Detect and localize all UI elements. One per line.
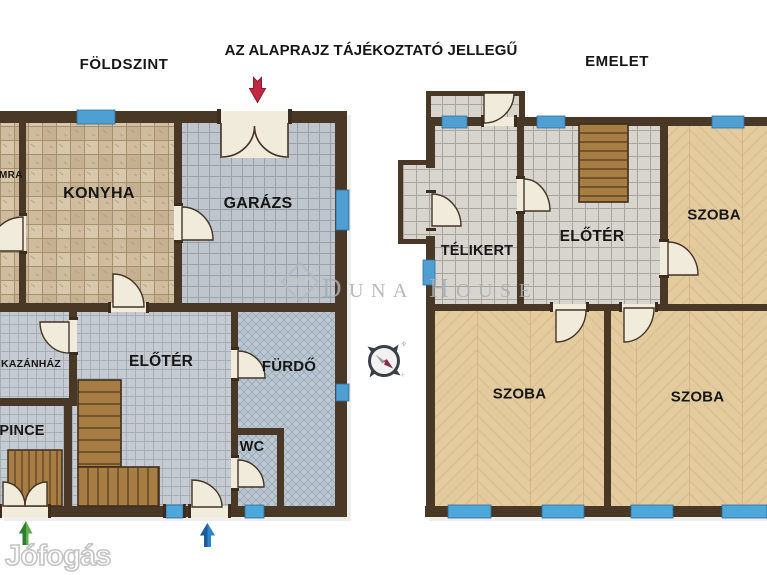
svg-text:ELŐTÉR: ELŐTÉR <box>129 352 193 370</box>
svg-text:KAMRA: KAMRA <box>0 170 23 181</box>
svg-text:Jófogás: Jófogás <box>5 540 111 572</box>
svg-text:FÜRDŐ: FÜRDŐ <box>262 357 316 375</box>
svg-text:KAZÁNHÁZ: KAZÁNHÁZ <box>1 357 61 370</box>
svg-text:GARÁZS: GARÁZS <box>224 193 293 212</box>
svg-text:ELŐTÉR: ELŐTÉR <box>560 227 625 245</box>
svg-text:TÉLIKERT: TÉLIKERT <box>441 242 514 259</box>
svg-text:SZOBA: SZOBA <box>493 386 547 403</box>
svg-text:SZOBA: SZOBA <box>671 389 725 406</box>
svg-text:SZOBA: SZOBA <box>687 207 741 224</box>
svg-text:PINCE: PINCE <box>0 423 45 439</box>
svg-text:KONYHA: KONYHA <box>63 185 135 202</box>
svg-text:FÖLDSZINT: FÖLDSZINT <box>80 56 169 73</box>
svg-text:AZ ALAPRAJZ TÁJÉKOZTATÓ JELLEG: AZ ALAPRAJZ TÁJÉKOZTATÓ JELLEGŰ <box>225 41 518 59</box>
svg-text:EMELET: EMELET <box>585 53 649 70</box>
svg-text:WC: WC <box>240 439 265 455</box>
